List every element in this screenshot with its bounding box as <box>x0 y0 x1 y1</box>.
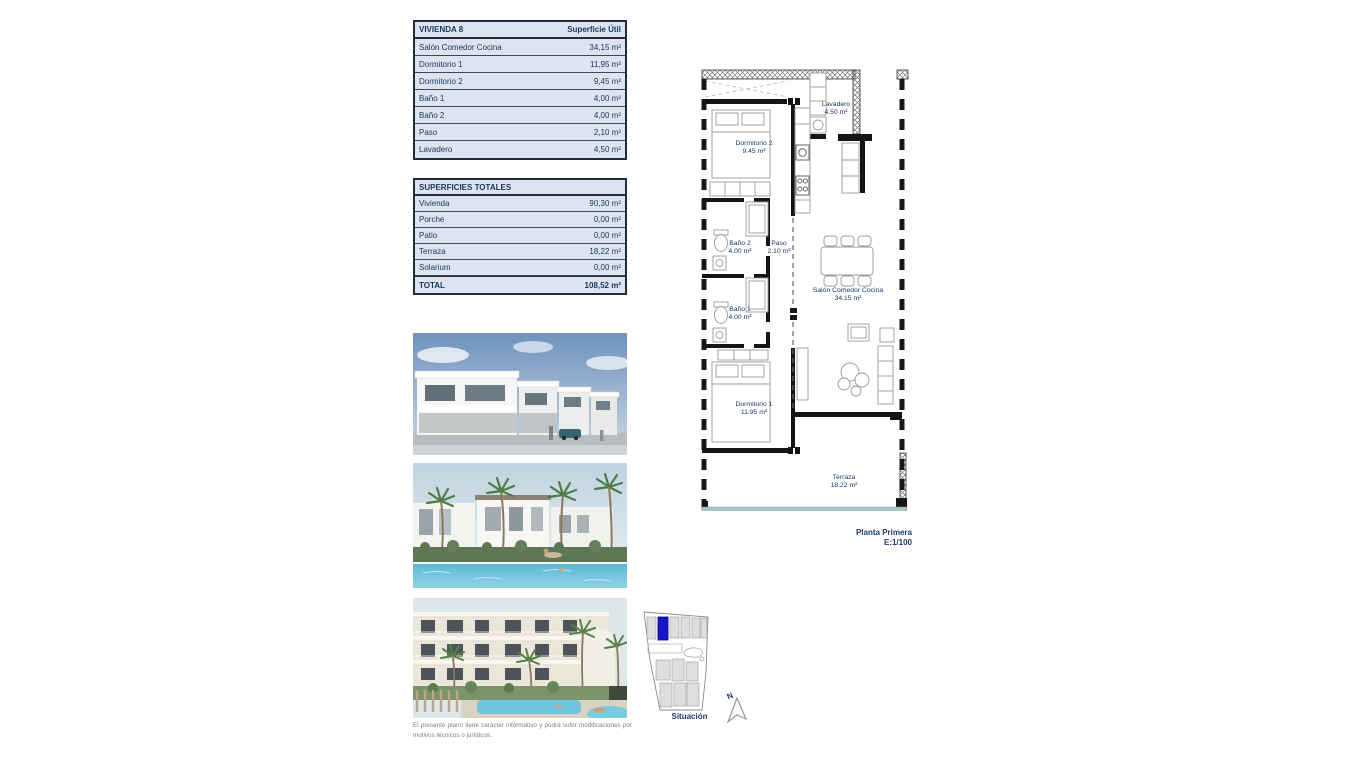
north-pointer <box>728 698 746 722</box>
site-map-drawing <box>636 602 716 714</box>
room-label: Dormitorio 1 <box>415 60 463 69</box>
table-row: Terraza 18,22 m² <box>415 244 625 260</box>
void-diagonals <box>705 81 788 97</box>
room-area: 11,95 m² <box>590 60 625 69</box>
table-row: Salón Comedor Cocina 34,15 m² <box>415 39 625 56</box>
plan-caption: Planta Primera E:1/100 <box>690 528 912 548</box>
vivienda-title: VIVIENDA 8 <box>415 25 463 34</box>
room-area-paso: 2.10 m² <box>767 248 791 255</box>
floorplan-drawing: Lavadero 4.50 m² Dormitorio 2 9.45 m² Ba… <box>690 60 920 535</box>
superficie-util-header: Superficie Útil <box>567 25 625 34</box>
table-row: Vivienda 90,30 m² <box>415 196 625 212</box>
apartments-illustration <box>413 598 627 718</box>
plan-caption-line2: E:1/100 <box>690 538 912 548</box>
room-label: Baño 1 <box>415 94 444 103</box>
room-area-dormitorio2: 9.45 m² <box>742 148 766 155</box>
room-label-terraza: Terraza <box>833 474 856 481</box>
room-label-bano1: Baño 1 <box>729 306 751 313</box>
room-area-lavadero: 4.50 m² <box>824 109 848 116</box>
render-photo-townhouses <box>413 333 627 455</box>
room-label-lavadero: Lavadero <box>822 101 851 108</box>
plan-caption-line1: Planta Primera <box>690 528 912 538</box>
room-label: Lavadero <box>415 145 452 154</box>
room-area: 4,00 m² <box>594 111 625 120</box>
table-row: Patio 0,00 m² <box>415 228 625 244</box>
table-row: Lavadero 4,50 m² <box>415 141 625 158</box>
surface-area: 18,22 m² <box>589 247 625 256</box>
room-area: 2,10 m² <box>594 128 625 137</box>
room-label-dormitorio2: Dormitorio 2 <box>735 140 772 147</box>
highlighted-unit <box>658 617 668 640</box>
table-row: Baño 2 4,00 m² <box>415 107 625 124</box>
table-row: Paso 2,10 m² <box>415 124 625 141</box>
surface-area: 0,00 m² <box>594 263 625 272</box>
table-row: Dormitorio 2 9,45 m² <box>415 73 625 90</box>
surface-area: 90,30 m² <box>589 199 625 208</box>
furniture <box>710 73 894 442</box>
total-area: 108,52 m² <box>585 281 625 290</box>
total-row: TOTAL 108,52 m² <box>415 276 625 293</box>
floorplan: Lavadero 4.50 m² Dormitorio 2 9.45 m² Ba… <box>690 60 920 540</box>
pool-illustration <box>413 463 627 588</box>
room-label-bano2: Baño 2 <box>729 240 751 247</box>
brochure-page: VIVIENDA 8 Superficie Útil Salón Comedor… <box>0 0 1366 768</box>
table-row: Porche 0,00 m² <box>415 212 625 228</box>
surface-label: Terraza <box>415 247 446 256</box>
townhouses-illustration <box>413 333 627 455</box>
surface-label: Patio <box>415 231 437 240</box>
room-area-bano1: 4.00 m² <box>728 314 752 321</box>
table-row: Solarium 0,00 m² <box>415 260 625 276</box>
vivienda-table: VIVIENDA 8 Superficie Útil Salón Comedor… <box>413 20 627 160</box>
room-area: 34,15 m² <box>589 43 625 52</box>
render-photo-pool <box>413 463 627 588</box>
room-label: Baño 2 <box>415 111 444 120</box>
north-letter: N <box>726 691 735 702</box>
room-label: Salón Comedor Cocina <box>415 43 502 52</box>
room-label: Paso <box>415 128 437 137</box>
room-area-bano2: 4.00 m² <box>728 248 752 255</box>
room-label-salon: Salón Comedor Cocina <box>813 287 883 294</box>
superficies-table: SUPERFICIES TOTALES Vivienda 90,30 m² Po… <box>413 178 627 295</box>
superficies-table-header: SUPERFICIES TOTALES <box>415 180 625 196</box>
surface-label: Porche <box>415 215 444 224</box>
site-buildings <box>647 617 707 707</box>
room-label-dormitorio1: Dormitorio 1 <box>735 401 772 408</box>
north-arrow-icon: N <box>716 686 756 728</box>
surface-label: Solarium <box>415 263 451 272</box>
total-label: TOTAL <box>415 281 445 290</box>
render-photo-apartments <box>413 598 627 718</box>
north-arrow: N <box>716 686 756 733</box>
terrace-edge-line <box>702 507 907 511</box>
room-area: 9,45 m² <box>594 77 625 86</box>
surface-area: 0,00 m² <box>594 215 625 224</box>
table-row: Dormitorio 1 11,95 m² <box>415 56 625 73</box>
table-row: Baño 1 4,00 m² <box>415 90 625 107</box>
vivienda-table-header: VIVIENDA 8 Superficie Útil <box>415 22 625 39</box>
surface-area: 0,00 m² <box>594 231 625 240</box>
room-area: 4,00 m² <box>594 94 625 103</box>
superficies-title: SUPERFICIES TOTALES <box>415 183 511 192</box>
surface-label: Vivienda <box>415 199 450 208</box>
room-area: 4,50 m² <box>594 145 625 154</box>
room-label-paso: Paso <box>771 240 787 247</box>
disclaimer-text: El presente plano tiene carácter informa… <box>413 721 632 741</box>
room-area-terraza: 18.22 m² <box>831 482 859 489</box>
room-area-salon: 34.15 m² <box>835 295 863 302</box>
site-map <box>636 602 716 719</box>
room-label: Dormitorio 2 <box>415 77 463 86</box>
room-area-dormitorio1: 11.95 m² <box>741 409 768 416</box>
